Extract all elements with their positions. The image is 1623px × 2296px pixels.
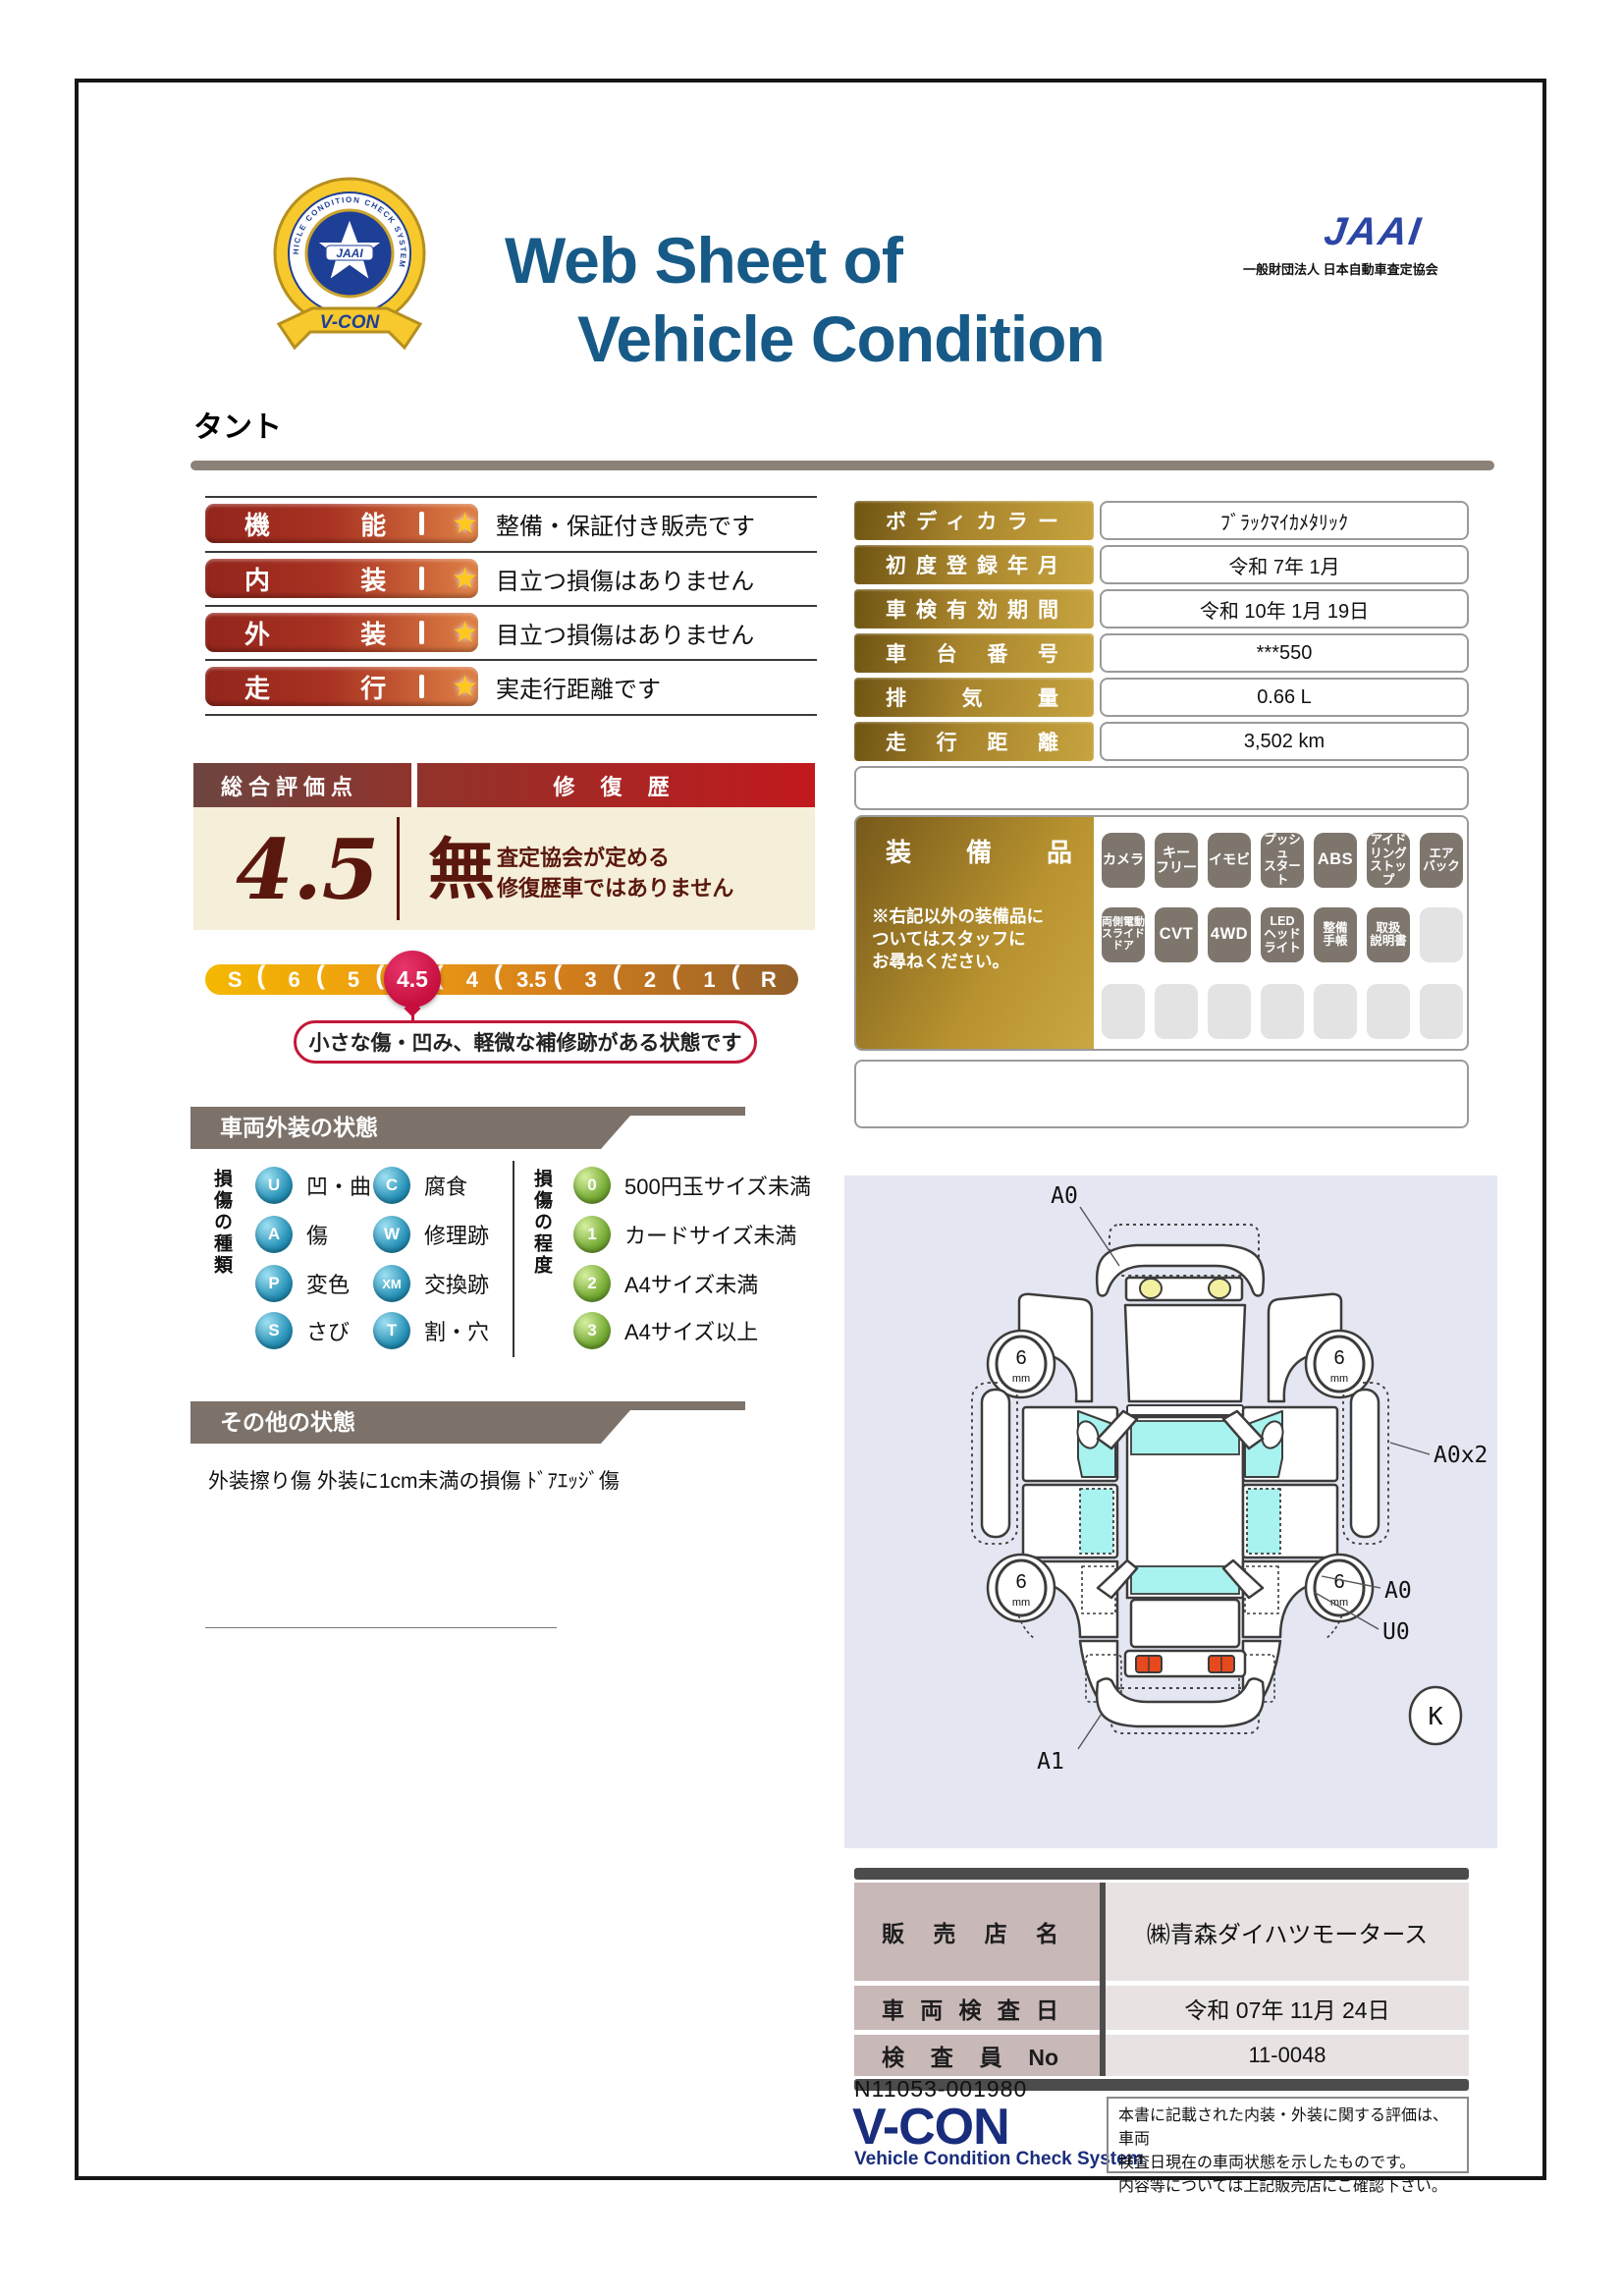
dealer-value-inspector-no: 11-0048 [1106,2035,1469,2076]
damage-degree-code: 3 [573,1312,611,1349]
equip-badge-keyfree: キー フリー [1155,833,1198,888]
car-damage-diagram: 6 mm 6 mm 6 mm 6 mm A0 A0x2 A0 U0 A1 K [844,1175,1497,1848]
info-value-inspection-validity: 令和 10年 1月 19日 [1100,589,1469,629]
grade-scale-step: S [205,964,264,995]
rating-pill-mileage: 走行 ★ [205,667,478,706]
rating-description: 目立つ損傷はありません [496,559,754,598]
other-condition-text: 外装擦り傷 外装に1cm未満の損傷 ﾄﾞｱｴｯｼﾞ傷 [208,1465,620,1495]
dealer-label-inspector-no: 検査員No [854,2035,1100,2076]
rating-label: 外装 [244,615,386,651]
equipment-title: 装備品 [886,833,1072,869]
grade-scale-step: 2 [621,964,679,995]
other-condition-banner: その他の状態 [190,1401,745,1444]
annotation-rear-fender: A0 [1384,1578,1412,1604]
equip-badge-empty [1367,984,1410,1039]
rating-description: 実走行距離です [496,667,661,706]
rating-description: 整備・保証付き販売です [496,504,755,543]
left-column-bottom-line [205,1627,557,1628]
equip-badge-airbag: エア バック [1420,833,1463,888]
headlight-left [1140,1279,1162,1298]
tailgate [1131,1600,1239,1647]
legend-divider [513,1161,514,1357]
rating-label: 内装 [244,561,386,597]
overall-score-value: 4.5 [236,821,358,918]
vcon-badge-logo: VEHICLE CONDITION CHECK SYSTEM JAAI V-CO… [271,175,428,381]
info-label-displacement: 排気量 [854,678,1094,717]
rating-separator [205,605,817,607]
damage-type-title: 損傷の種類 [208,1169,235,1277]
rating-description: 目立つ損傷はありません [496,613,754,652]
dealer-table-top-bar [854,1868,1469,1880]
equip-badge-camera: カメラ [1102,833,1145,888]
jaai-organization-name: 一般財団法人 日本自動車査定協会 [1243,259,1438,278]
svg-text:mm: mm [1330,1373,1348,1385]
dealer-label-shop: 販売店名 [854,1883,1100,1981]
windshield [1131,1421,1239,1454]
badge-ribbon-text: V-CON [320,312,381,333]
svg-text:mm: mm [1012,1597,1030,1609]
info-label-mileage: 走行距離 [854,722,1094,761]
dealer-table-divider [1100,1883,1106,2076]
grade-scale-step: R [739,964,798,995]
rating-pill-exterior: 外装 ★ [205,613,478,652]
info-label-inspection-validity: 車検有効期間 [854,589,1094,629]
damage-degree-label: A4サイズ未満 [624,1265,758,1302]
selected-grade-marker: 4.5 [384,951,441,1008]
rating-pill-interior: 内装 ★ [205,559,478,598]
damage-type-code: W [373,1216,410,1253]
grade-scale-step: 5 [324,964,383,995]
grade-callout-bubble: 小さな傷・凹み、軽微な補修跡がある状態です [294,1020,757,1064]
grade-scale-step: 3 [561,964,620,995]
damage-type-label: 修理跡 [424,1216,489,1253]
info-value-body-color: ﾌﾞﾗｯｸﾏｲｶﾒﾀﾘｯｸ [1100,501,1469,540]
annotation-underbody: U0 [1382,1619,1410,1645]
damage-type-code: U [255,1167,293,1204]
corner-mark: K [1428,1702,1442,1730]
annotation-front-bumper: A0 [1051,1183,1078,1209]
grade-scale-bar: S 6 5 4 3.5 3 2 1 R [205,964,798,995]
damage-degree-code: 1 [573,1216,611,1253]
sheet-title-line2: Vehicle Condition [577,306,1105,371]
damage-degree-label: A4サイズ以上 [624,1312,758,1349]
annotation-side-sill: A0x2 [1434,1443,1488,1468]
disclaimer-box: 本書に記載された内装・外装に関する評価は、車両 検査日現在の車両状態を示したもの… [1107,2097,1469,2173]
cowl [1127,1405,1243,1415]
damage-type-label: 変色 [306,1265,350,1302]
damage-type-label: 傷 [306,1216,328,1253]
equip-badge-led-headlights: LED ヘッド ライト [1261,907,1304,962]
rating-label: 機能 [244,506,386,542]
info-value-first-registration: 令和 7年 1月 [1100,545,1469,584]
info-label-first-registration: 初度登録年月 [854,545,1094,584]
equipment-note: ※右記以外の装備品に ついてはスタッフに お尋ねください。 [872,905,1044,973]
damage-type-label: さび [306,1312,350,1349]
overall-score-title: 総合評価点 [221,770,358,801]
equipment-empty-box [854,1060,1469,1128]
damage-degree-code: 0 [573,1167,611,1204]
info-value-mileage: 3,502 km [1100,722,1469,761]
equip-badge-4wd: 4WD [1208,907,1251,962]
grade-scale-step: 6 [264,964,323,995]
damage-degree-label: カードサイズ未満 [624,1216,796,1253]
star-icon: ★ [452,616,478,650]
rating-separator [205,714,817,716]
info-empty-row [854,766,1469,810]
rating-separator [205,551,817,553]
equip-badge-cvt: CVT [1155,907,1198,962]
equip-badge-service-book: 整備 手帳 [1314,907,1357,962]
equip-badge-push-start: プッシュ スタート [1261,833,1304,888]
svg-text:6: 6 [1015,1347,1026,1369]
damage-type-code: P [255,1265,293,1302]
info-value-chassis-number: ***550 [1100,633,1469,673]
damage-type-code: A [255,1216,293,1253]
headlight-right [1209,1279,1230,1298]
hood [1125,1305,1245,1401]
rating-separator [205,496,817,498]
exterior-condition-banner: 車両外装の状態 [190,1107,745,1149]
svg-text:6: 6 [1333,1571,1344,1593]
equip-badge-owners-manual: 取扱 説明書 [1367,907,1410,962]
header-divider-bar [190,461,1494,470]
damage-type-label: 腐食 [424,1167,467,1204]
damage-type-code: XM [373,1265,410,1302]
equip-badge-empty [1261,984,1304,1039]
annotation-rear-bumper: A1 [1037,1749,1064,1775]
dealer-value-shop: ㈱青森ダイハツモータース [1106,1883,1469,1981]
dealer-label-inspection-date: 車両検査日 [854,1986,1100,2030]
score-body-divider [397,817,400,920]
damage-type-code: T [373,1312,410,1349]
sheet-title-line1: Web Sheet of [505,228,902,293]
svg-text:6: 6 [1333,1347,1344,1369]
equip-badge-empty [1420,907,1463,962]
damage-degree-label: 500円玉サイズ未満 [624,1167,811,1204]
info-label-chassis-number: 車台番号 [854,633,1094,673]
rating-separator [205,659,817,661]
equip-badge-power-slide-doors: 両側電動 スライド ドア [1102,907,1145,962]
vehicle-condition-sheet: VEHICLE CONDITION CHECK SYSTEM JAAI V-CO… [75,79,1546,2180]
vehicle-name: タント [193,403,282,446]
equip-badge-empty [1420,984,1463,1039]
dealer-value-inspection-date: 令和 07年 11月 24日 [1106,1986,1469,2030]
vcon-footer-subtitle: Vehicle Condition Check System [854,2149,1144,2170]
equip-badge-immobilizer: イモビ [1208,833,1251,888]
star-icon: ★ [452,562,478,596]
damage-type-label: 交換跡 [424,1265,489,1302]
info-label-body-color: ボディカラー [854,501,1094,540]
vcon-footer-logo: V-CON [852,2098,1009,2157]
overall-score-header: 総合評価点 修 復 歴 [193,763,815,807]
damage-degree-title: 損傷の程度 [528,1169,555,1277]
pill-divider [419,621,424,644]
equip-badge-empty [1314,984,1357,1039]
equip-badge-empty [1102,984,1145,1039]
badge-center-text: JAAI [336,246,363,260]
equip-badge-idling-stop: アイド リング ストップ [1367,833,1410,888]
pill-divider [419,512,424,535]
grade-scale-step: 3.5 [502,964,561,995]
damage-type-label: 割・穴 [424,1312,489,1349]
jaai-logo: JAAI [1322,210,1425,254]
repair-history-value: 無 [428,837,495,903]
equip-badge-empty [1155,984,1198,1039]
info-value-displacement: 0.66 L [1100,678,1469,717]
repair-history-note: 査定協会が定める 修復歴車ではありません [497,843,733,903]
grade-scale-step: 4 [443,964,502,995]
star-icon: ★ [452,507,478,541]
star-icon: ★ [452,670,478,704]
equip-badge-empty [1208,984,1251,1039]
damage-degree-code: 2 [573,1265,611,1302]
rating-pill-function: 機能 ★ [205,504,478,543]
damage-type-label: 凹・曲 [306,1167,371,1204]
rating-label: 走行 [244,669,386,705]
pill-divider [419,675,424,698]
svg-text:mm: mm [1012,1373,1030,1385]
damage-type-code: S [255,1312,293,1349]
equip-badge-abs: ABS [1314,833,1357,888]
grade-scale-step: 1 [679,964,738,995]
damage-type-code: C [373,1167,410,1204]
repair-history-title: 修 復 歴 [417,770,815,801]
pill-divider [419,567,424,590]
svg-text:6: 6 [1015,1571,1026,1593]
rear-window [1131,1566,1239,1594]
